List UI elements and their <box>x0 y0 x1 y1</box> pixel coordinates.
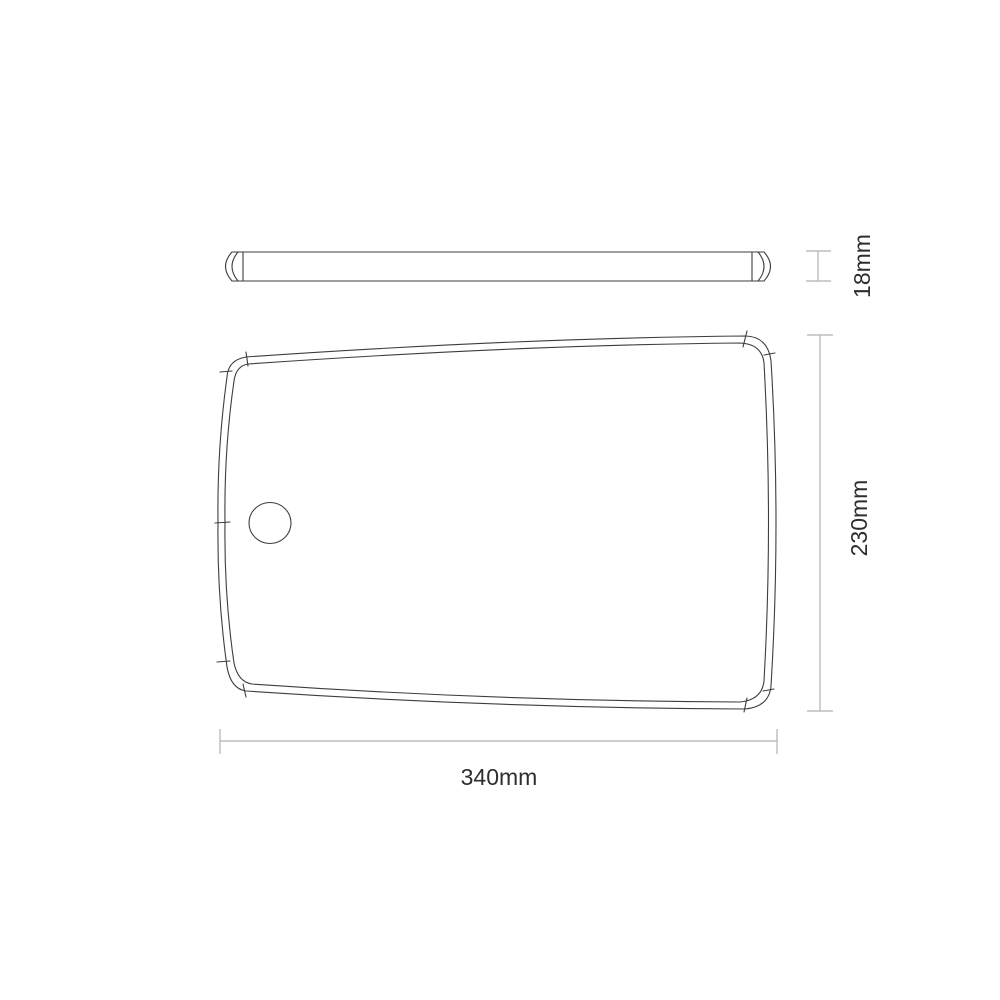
joint-tick-right-bottom <box>763 689 774 691</box>
joint-tick-left-bottom <box>217 661 230 662</box>
technical-drawing-svg: 18mm 230mm <box>0 0 1000 1000</box>
joint-tick-bottom-right <box>744 698 747 712</box>
joint-tick-left-top <box>220 371 232 372</box>
thickness-dimension: 18mm <box>806 234 875 298</box>
side-view-right-cap-inner-arc <box>758 252 764 281</box>
drawing-canvas: 18mm 230mm <box>0 0 1000 1000</box>
side-view-left-cap-outer-arc <box>226 252 233 281</box>
joint-tick-left-middle <box>215 522 230 523</box>
height-dimension: 230mm <box>807 335 872 711</box>
board-inner-outline <box>225 343 769 702</box>
height-dimension-label: 230mm <box>846 480 872 557</box>
side-view-right-cap-outer-arc <box>764 252 771 281</box>
side-view-left-cap-inner-arc <box>232 252 238 281</box>
width-dimension-label: 340mm <box>461 764 538 790</box>
board-outer-outline <box>218 336 776 709</box>
width-dimension: 340mm <box>220 729 777 790</box>
joint-tick-top-right <box>743 331 747 347</box>
top-view <box>215 331 776 712</box>
side-view <box>226 252 771 281</box>
thumb-hole <box>249 503 291 544</box>
thickness-dimension-label: 18mm <box>849 234 875 298</box>
